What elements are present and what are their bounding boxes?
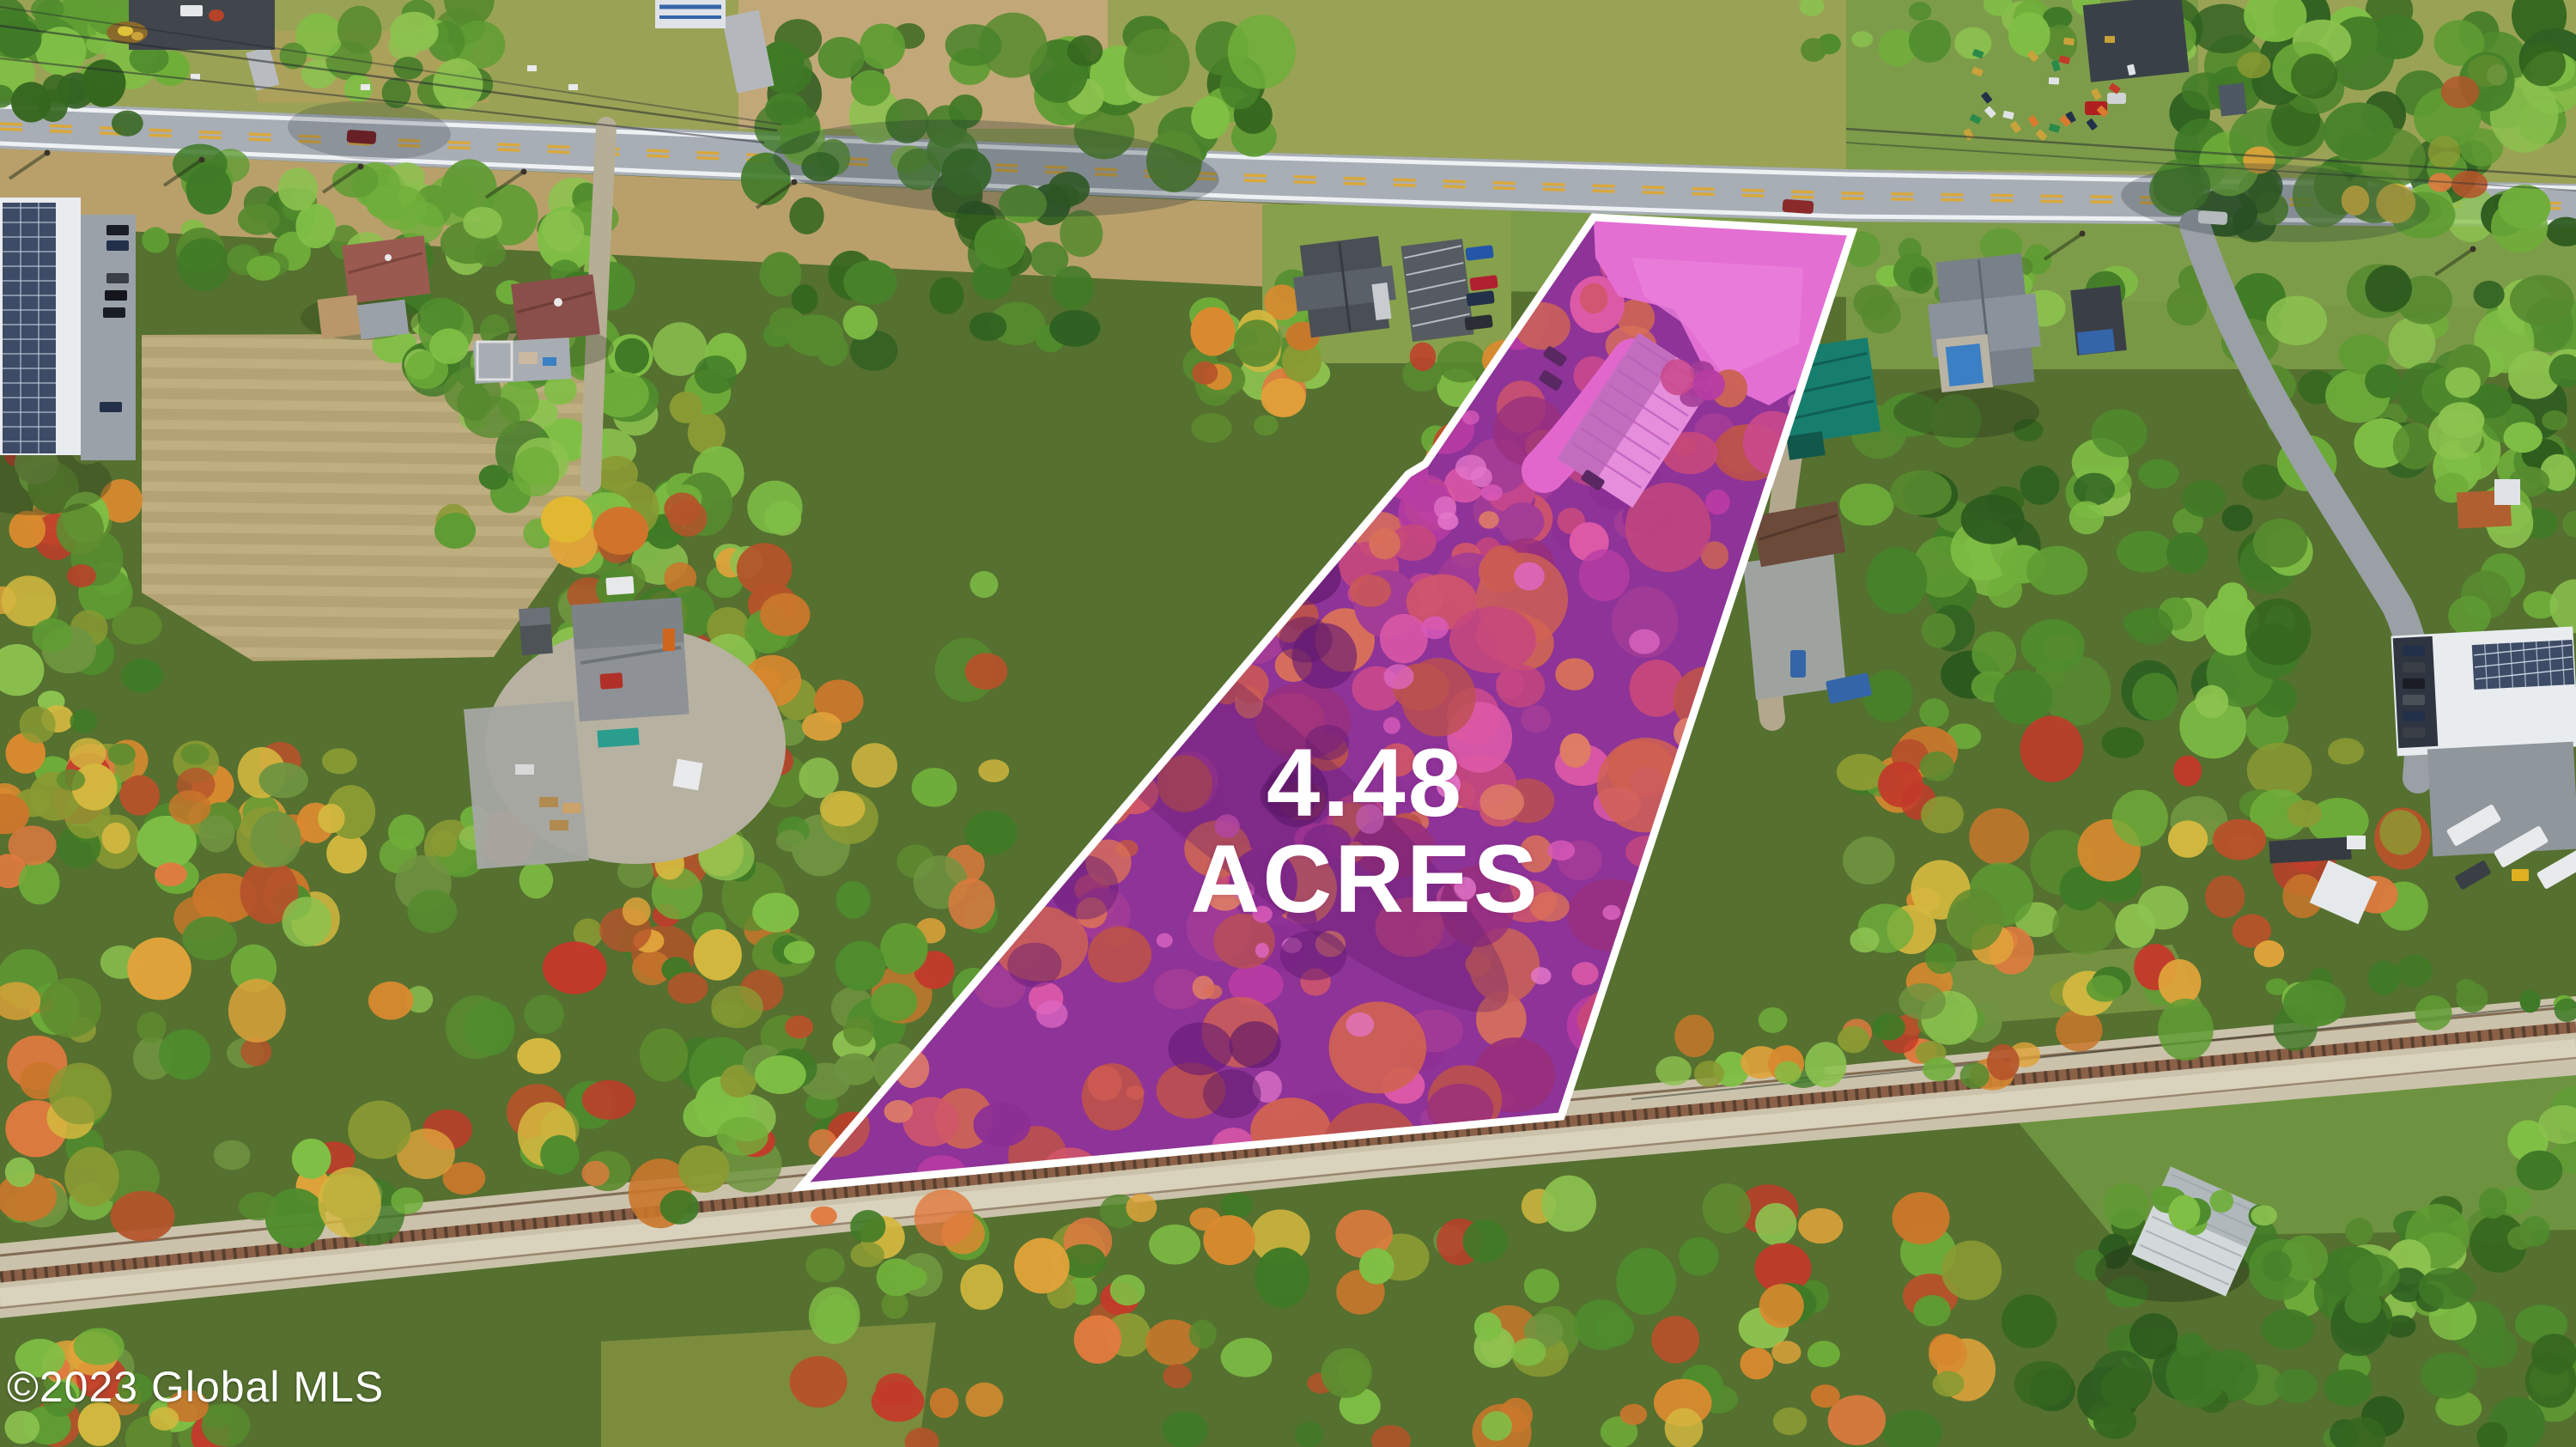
parcel-area-unit: ACRES (1190, 831, 1540, 927)
parcel-area-label: 4.48 ACRES (1190, 735, 1540, 927)
aerial-photo: 4.48 ACRES ©2023 Global MLS (0, 0, 2576, 1447)
scene-illustration (0, 0, 2576, 1447)
mls-watermark: ©2023 Global MLS (7, 1362, 384, 1412)
parcel-area-value: 4.48 (1190, 735, 1540, 831)
